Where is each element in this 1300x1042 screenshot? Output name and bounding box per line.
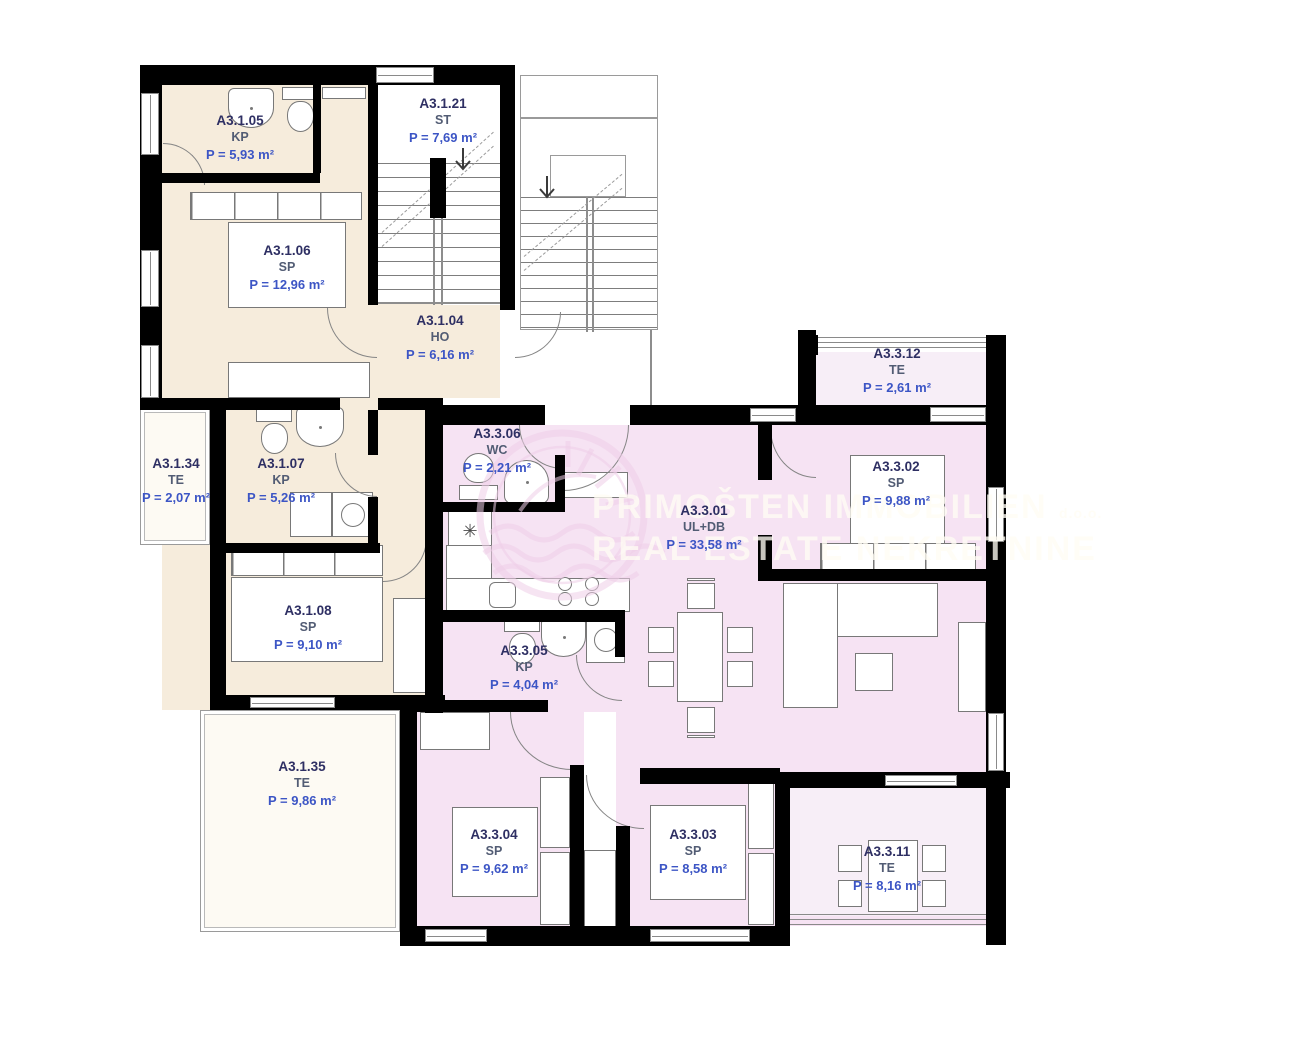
chair (648, 661, 674, 687)
window (988, 713, 1004, 771)
room-label-A3.1.35: A3.1.35TEP = 9,86 m² (268, 758, 336, 809)
room-label-A3.3.11: A3.3.11TEP = 8,16 m² (853, 843, 921, 894)
shaft-box (584, 850, 616, 927)
wall-segment (210, 408, 226, 710)
room-type: SP (274, 619, 342, 636)
media-cabinet (958, 622, 986, 712)
chair (648, 627, 674, 653)
kitchen-sink (489, 582, 516, 608)
room-type: KP (490, 659, 558, 676)
window (930, 407, 986, 422)
room-type: KP (247, 472, 315, 489)
room-label-A3.3.06: A3.3.06WCP = 2,21 m² (463, 425, 531, 476)
room-area: P = 9,86 m² (268, 792, 336, 809)
wall-segment (986, 405, 1006, 945)
room-type: HO (406, 329, 474, 346)
room-area: P = 9,62 m² (460, 860, 528, 877)
room-area: P = 12,96 m² (249, 276, 324, 293)
hob-burner (585, 577, 599, 591)
room-type: TE (863, 362, 931, 379)
chair (687, 583, 715, 609)
toilet-bowl (261, 423, 288, 454)
room-area: P = 8,58 m² (659, 860, 727, 877)
room-label-A3.1.07: A3.1.07KPP = 5,26 m² (247, 455, 315, 506)
room-label-A3.1.21: A3.1.21STP = 7,69 m² (409, 95, 477, 146)
shelf (322, 87, 366, 99)
chair-back (687, 735, 715, 738)
chair (922, 845, 946, 872)
room-label-A3.1.34: A3.1.34TEP = 2,07 m² (142, 455, 210, 506)
stairs-direction-arrow-icon (536, 174, 558, 204)
wall-segment (555, 455, 565, 512)
room-type: ST (409, 112, 477, 129)
window (141, 93, 159, 155)
terrace-railing (790, 914, 1006, 926)
pillow (540, 852, 570, 925)
room-code: A3.1.07 (247, 455, 315, 472)
room-code: A3.1.06 (249, 242, 324, 259)
wall-segment (800, 335, 818, 355)
room-label-A3.3.03: A3.3.03SPP = 8,58 m² (659, 826, 727, 877)
room-code: A3.3.01 (666, 502, 741, 519)
room-label-A3.1.04: A3.1.04HOP = 6,16 m² (406, 312, 474, 363)
room-code: A3.1.21 (409, 95, 477, 112)
room-area: P = 2,21 m² (463, 459, 531, 476)
window (141, 345, 159, 398)
hob-burner (558, 577, 572, 591)
room-type: SP (862, 475, 930, 492)
stairwell-outline (520, 75, 658, 118)
room-label-A3.3.04: A3.3.04SPP = 9,62 m² (460, 826, 528, 877)
wall-segment (210, 543, 380, 553)
hob-burner (558, 592, 572, 606)
wall-segment (162, 173, 320, 183)
room-label-A3.1.08: A3.1.08SPP = 9,10 m² (274, 602, 342, 653)
wall-segment (640, 768, 780, 784)
wall-segment (368, 497, 378, 543)
room-code: A3.3.03 (659, 826, 727, 843)
room-code: A3.3.05 (490, 642, 558, 659)
pillow (748, 777, 774, 849)
stair-divider-line (592, 197, 594, 332)
bed-headboard (820, 543, 976, 570)
wall-segment (400, 700, 548, 712)
wall-segment (758, 569, 988, 581)
wall-segment (430, 158, 446, 218)
wardrobe (420, 712, 490, 750)
room-area: P = 4,04 m² (490, 676, 558, 693)
room-area: P = 33,58 m² (666, 536, 741, 553)
wall-segment (615, 622, 625, 657)
wall-segment (616, 826, 630, 928)
wall-segment (775, 772, 790, 945)
wall-segment (443, 610, 625, 622)
terrace-area (200, 710, 400, 932)
wall-segment (400, 700, 417, 945)
room-type: TE (853, 860, 921, 877)
window (250, 697, 335, 708)
room-area: P = 2,61 m² (863, 379, 931, 396)
room-type: SP (659, 843, 727, 860)
room-code: A3.1.04 (406, 312, 474, 329)
wall-segment (758, 425, 772, 480)
room-type: TE (268, 775, 336, 792)
wall-segment (425, 405, 545, 425)
toilet-tank (256, 409, 292, 422)
room-type: SP (460, 843, 528, 860)
chair (687, 707, 715, 733)
door-swing-arc (515, 312, 561, 358)
room-code: A3.3.11 (853, 843, 921, 860)
chair (727, 661, 753, 687)
sink (296, 407, 344, 447)
room-label-A3.3.12: A3.3.12TEP = 2,61 m² (863, 345, 931, 396)
room-area: P = 7,69 m² (409, 129, 477, 146)
room-code: A3.1.35 (268, 758, 336, 775)
room-code: A3.3.12 (863, 345, 931, 362)
room-code: A3.1.34 (142, 455, 210, 472)
watermark-suffix: d.o.o. (1059, 505, 1102, 521)
desk (228, 362, 370, 398)
kitchen-counter (446, 578, 630, 612)
room-code: A3.1.05 (206, 112, 274, 129)
window (650, 929, 750, 942)
room-type: KP (206, 129, 274, 146)
stairwell-outline (550, 155, 626, 197)
room-code: A3.3.04 (460, 826, 528, 843)
window (376, 67, 434, 83)
room-type: UL+DB (666, 519, 741, 536)
stairs-direction-arrow-icon (452, 146, 474, 176)
chair (727, 627, 753, 653)
chair-back (687, 578, 715, 581)
room-area: P = 5,26 m² (247, 489, 315, 506)
window (750, 408, 796, 422)
pillow (748, 853, 774, 925)
wall-segment (570, 765, 584, 928)
window (885, 775, 957, 786)
toilet-bowl (287, 101, 314, 132)
room-code: A3.3.02 (862, 458, 930, 475)
floor-plan: PRIMOŠTEN IMMOBILIEN d.o.o. REAL ESTATE … (0, 0, 1300, 1042)
room-label-A3.1.06: A3.1.06SPP = 12,96 m² (249, 242, 324, 293)
window (988, 487, 1004, 542)
pillow (540, 777, 570, 848)
wall-segment (500, 65, 515, 310)
room-label-A3.3.05: A3.3.05KPP = 4,04 m² (490, 642, 558, 693)
sofa (783, 583, 838, 708)
wall-segment (140, 65, 515, 85)
wall-segment (986, 335, 1006, 355)
wall-segment (368, 410, 378, 455)
stair-divider-line (378, 302, 515, 304)
fridge-icon: ✳ (448, 505, 492, 558)
window (425, 929, 487, 942)
bed-headboard (190, 192, 362, 220)
room-area: P = 9,88 m² (862, 492, 930, 509)
room-label-A3.3.02: A3.3.02SPP = 9,88 m² (862, 458, 930, 509)
stair-divider-line (650, 330, 652, 405)
room-code: A3.1.08 (274, 602, 342, 619)
wall-segment (443, 502, 565, 512)
room-label-A3.1.05: A3.1.05KPP = 5,93 m² (206, 112, 274, 163)
room-label-A3.3.01: A3.3.01UL+DBP = 33,58 m² (666, 502, 741, 553)
stairwell-outline (520, 118, 658, 330)
room-area: P = 2,07 m² (142, 489, 210, 506)
room-area: P = 8,16 m² (853, 877, 921, 894)
wall-segment (313, 85, 321, 173)
wall-segment (368, 85, 378, 305)
window (141, 250, 159, 307)
room-area: P = 6,16 m² (406, 346, 474, 363)
toilet-tank (459, 485, 498, 500)
dining-table (677, 612, 723, 702)
wall-segment (140, 398, 340, 410)
room-type: SP (249, 259, 324, 276)
room-type: WC (463, 442, 531, 459)
room-area: P = 5,93 m² (206, 146, 274, 163)
hob-burner (585, 592, 599, 606)
washer-drum (341, 503, 365, 527)
wall-segment (425, 398, 443, 713)
coffee-table (855, 653, 893, 691)
room-type: TE (142, 472, 210, 489)
chair (922, 880, 946, 907)
room-code: A3.3.06 (463, 425, 531, 442)
room-area: P = 9,10 m² (274, 636, 342, 653)
